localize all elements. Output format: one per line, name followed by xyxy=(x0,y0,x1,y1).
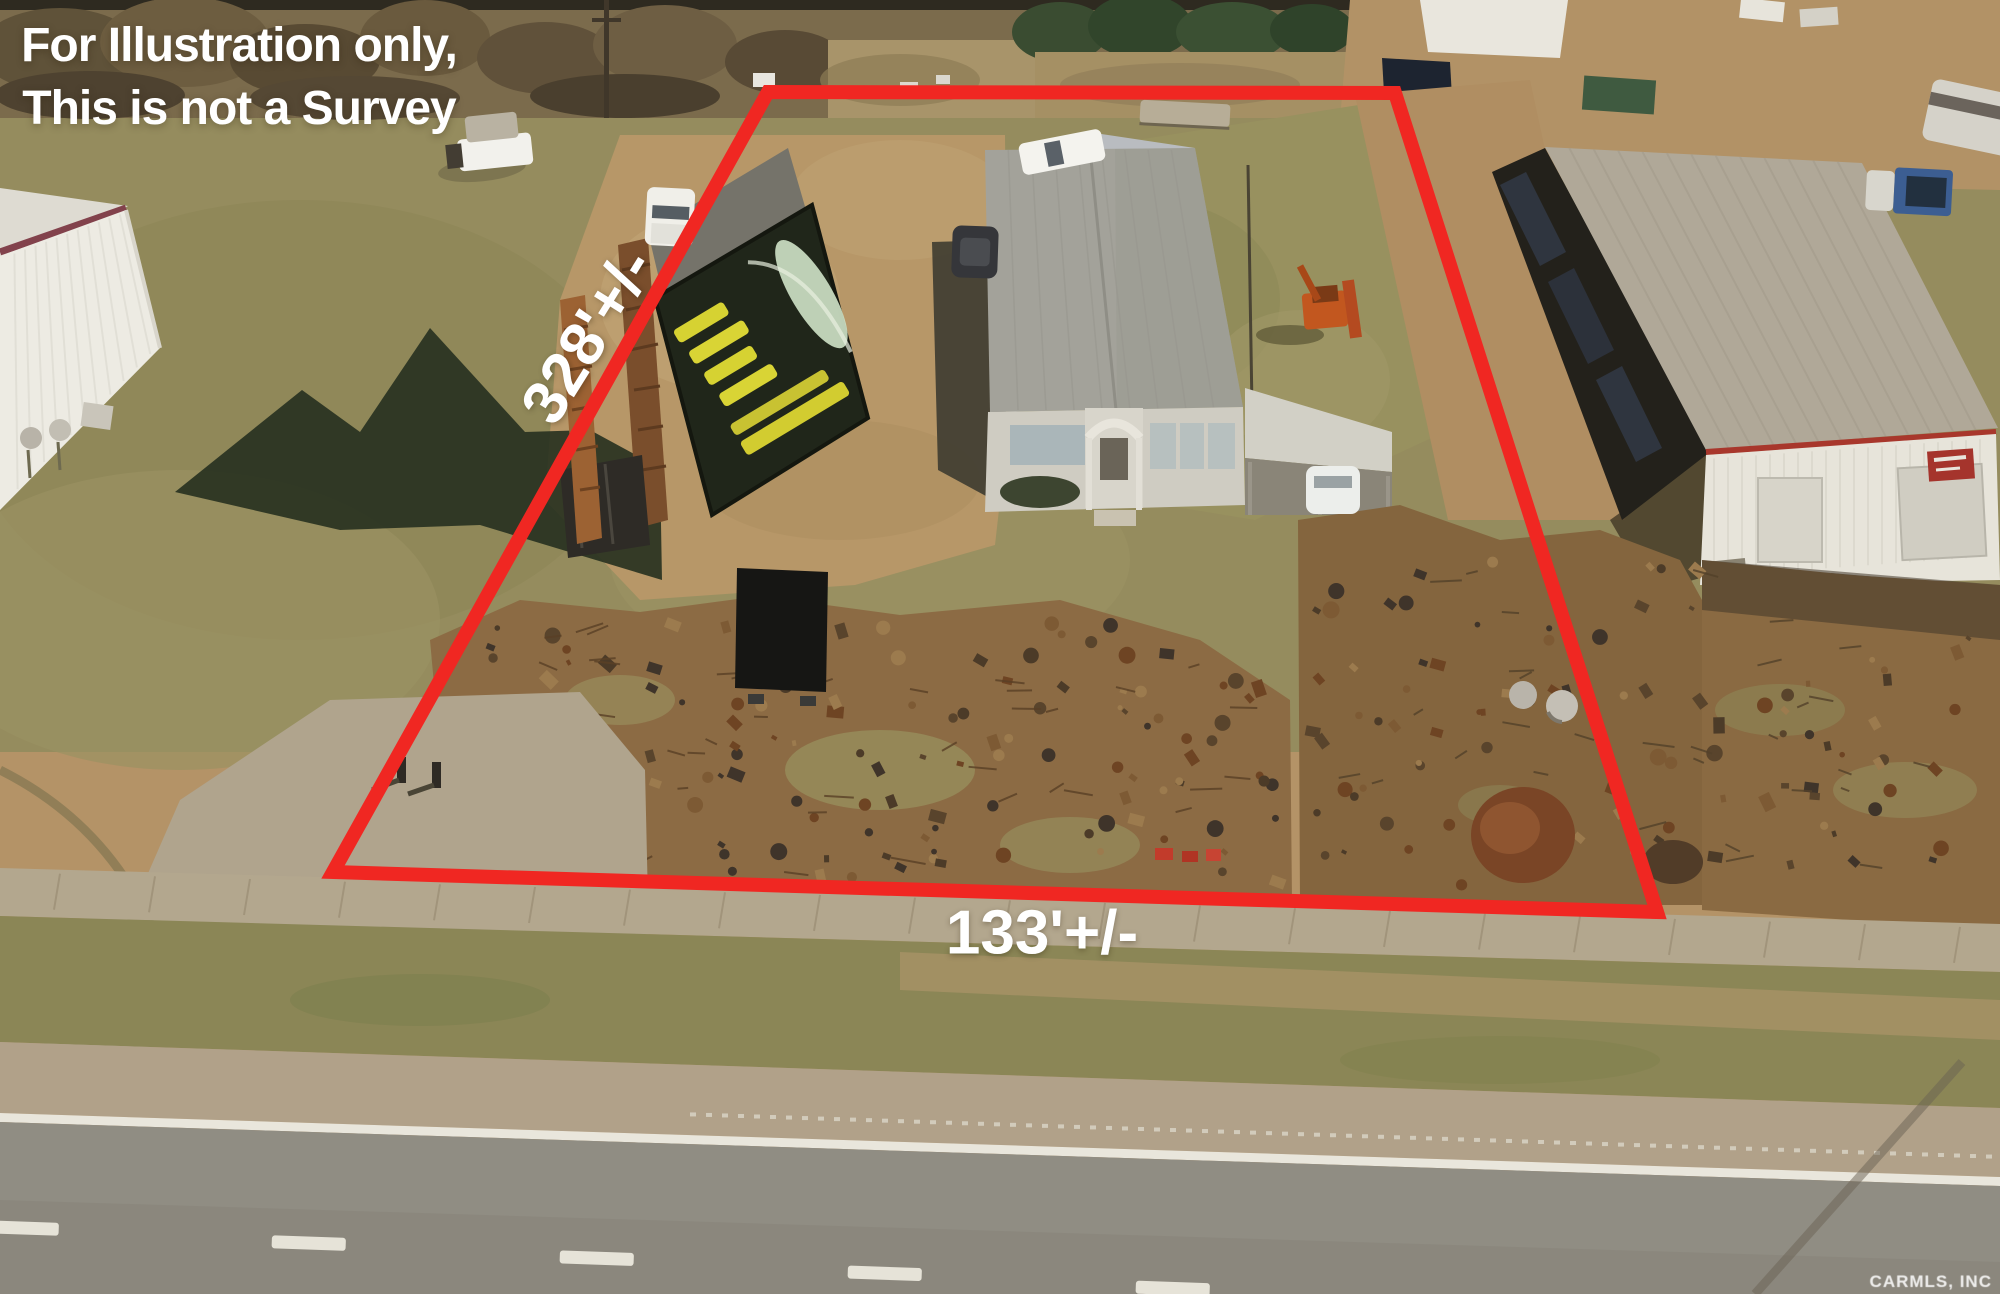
disclaimer-text: For Illustration only, This is not a Sur… xyxy=(0,14,478,141)
aerial-property-photo: For Illustration only, This is not a Sur… xyxy=(0,0,2000,1294)
shrubs xyxy=(1000,476,1080,508)
dark-suv xyxy=(951,225,999,279)
blue-truck xyxy=(1865,166,1953,216)
ac-unit xyxy=(80,402,113,430)
white-canopy xyxy=(1420,0,1568,58)
rv-trailer xyxy=(1139,100,1230,129)
dimension-frontage: 133'+/- xyxy=(946,898,1138,969)
disclaimer-line2: This is not a Survey xyxy=(0,77,478,140)
windows xyxy=(1150,423,1235,469)
windows xyxy=(1010,425,1085,465)
building-sign xyxy=(1927,448,1975,481)
satellite-dish xyxy=(49,419,71,441)
white-car-carport xyxy=(1306,466,1360,514)
metal-sphere xyxy=(1509,681,1537,709)
watermark: CARMLS, INC xyxy=(1870,1272,1992,1292)
scene-photo xyxy=(0,0,2000,1294)
satellite-dish xyxy=(20,427,42,449)
bay-door xyxy=(1758,478,1822,562)
disclaimer-line1: For Illustration only, xyxy=(0,14,478,77)
black-trailer xyxy=(735,568,828,692)
entry-door xyxy=(1100,438,1128,480)
green-container xyxy=(1582,76,1656,115)
utility-pole xyxy=(604,0,609,118)
